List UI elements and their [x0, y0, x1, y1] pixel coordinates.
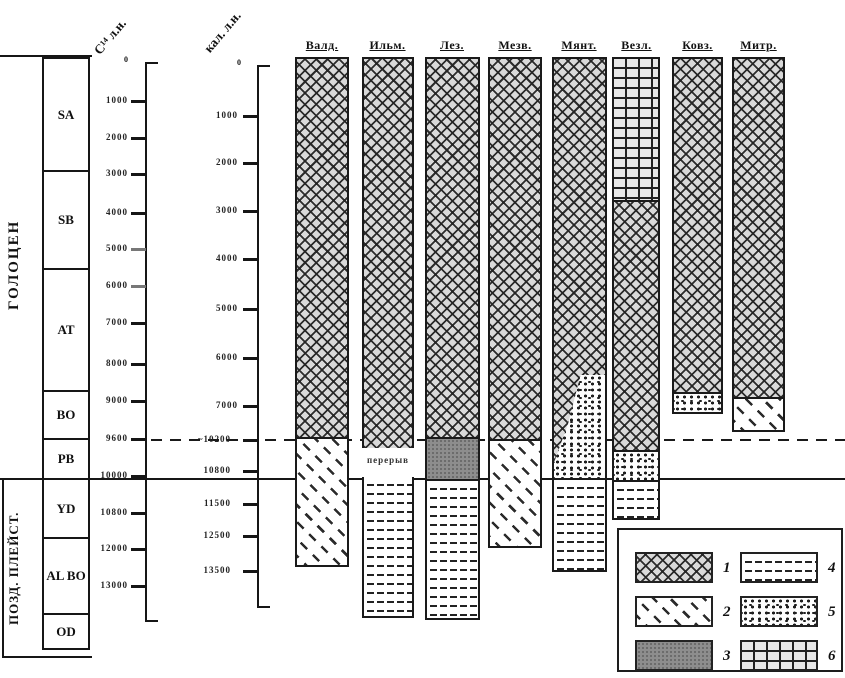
c14-tick-label: 3000 — [86, 168, 128, 178]
segment-horizontal-dash — [552, 478, 607, 572]
segment-crosshatch — [362, 57, 414, 450]
cal-tick — [243, 308, 258, 311]
cal-scale-line — [257, 65, 259, 608]
cal-tick-label: 3000 — [196, 205, 238, 215]
cal-scale-bottom-cap — [257, 606, 270, 608]
c14-tick — [131, 285, 146, 288]
cal-scale-top-cap — [257, 65, 270, 67]
legend-swatch-horizontal-dash — [740, 552, 818, 583]
segment-stipple — [612, 450, 660, 482]
cal-tick-label: 10800 — [189, 465, 231, 475]
cal-tick-label: 1000 — [196, 110, 238, 120]
cal-tick-label: 11500 — [189, 498, 231, 508]
segment-crosshatch — [488, 57, 542, 441]
c14-tick — [131, 512, 146, 515]
zone-box-sb: SB — [42, 170, 90, 270]
column-vald — [295, 57, 349, 567]
c14-tick-label: 9000 — [86, 395, 128, 405]
zone-box-at: AT — [42, 268, 90, 392]
segment-crosshatch — [732, 57, 785, 399]
cal-tick-label: 5000 — [196, 303, 238, 313]
segment-horizontal-dash — [612, 480, 660, 520]
column-header-mitr: Митр. — [728, 38, 789, 54]
c14-tick — [131, 137, 146, 140]
legend-num-6: 6 — [828, 648, 836, 665]
c14-tick — [131, 212, 146, 215]
column-vezl — [612, 57, 660, 520]
legend-num-1: 1 — [723, 560, 731, 577]
c14-tick-label: 13000 — [86, 580, 128, 590]
c14-scale-title: С¹⁴ л.н. — [91, 16, 130, 58]
legend-num-4: 4 — [828, 560, 836, 577]
column-header-myant: Мянт. — [547, 38, 611, 54]
c14-tick — [131, 438, 146, 441]
cal-tick-label: 4000 — [196, 253, 238, 263]
column-header-kovz: Ковз. — [668, 38, 727, 54]
segment-horizontal-dash — [362, 475, 414, 618]
column-kovz — [672, 57, 723, 414]
cal-tick-label: ~10200 — [189, 434, 231, 444]
cal-tick — [243, 405, 258, 408]
legend-swatch-grid — [740, 640, 818, 671]
epoch-label-late-pleistocene: ПОЗД. ПЛЕЙСТ. — [6, 483, 22, 653]
column-header-mezv: Мезв. — [483, 38, 547, 54]
c14-tick-label: 2000 — [86, 132, 128, 142]
c14-tick-label: 10800 — [86, 507, 128, 517]
c14-tick-label: 10000 — [86, 470, 128, 480]
cal-tick-label: 6000 — [196, 352, 238, 362]
legend-swatch-stipple — [740, 596, 818, 627]
column-lez — [425, 57, 480, 620]
segment-crosshatch — [612, 200, 660, 452]
legend-num-2: 2 — [723, 604, 731, 621]
segment-crosshatch — [552, 57, 607, 480]
c14-tick — [131, 585, 146, 588]
cal-tick — [243, 258, 258, 261]
column-myant — [552, 57, 607, 572]
segment-hiatus: перерыв — [362, 448, 414, 477]
legend-box: 1 2 3 4 5 6 — [617, 528, 843, 672]
zone-box-bo: BO — [42, 390, 90, 440]
segment-crosshatch — [425, 57, 480, 439]
segment-horizontal-dash — [425, 479, 480, 620]
c14-tick-label: 9600 — [86, 433, 128, 443]
c14-tick — [131, 322, 146, 325]
cal-tick — [243, 439, 258, 442]
zone-box-sa: SA — [42, 57, 90, 172]
c14-tick-label: 1000 — [86, 95, 128, 105]
c14-tick — [131, 475, 146, 478]
legend-num-5: 5 — [828, 604, 836, 621]
zone-box-pb: PB — [42, 438, 90, 480]
cal-tick — [243, 570, 258, 573]
segment-diagonal — [732, 397, 785, 432]
segment-crosshatch — [672, 57, 723, 394]
column-header-ilm: Ильм. — [357, 38, 418, 54]
epoch-label-holocene: ГОЛОЦЕН — [6, 150, 23, 380]
c14-tick-label: 6000 — [86, 280, 128, 290]
c14-tick-label: 4000 — [86, 207, 128, 217]
hiatus-label: перерыв — [358, 455, 418, 465]
c14-tick-label: 12000 — [86, 543, 128, 553]
column-mezv — [488, 57, 542, 548]
column-header-lez: Лез. — [420, 38, 484, 54]
c14-tick — [131, 548, 146, 551]
c14-tick — [131, 173, 146, 176]
cal-tick-label: 12500 — [189, 530, 231, 540]
cal-zero-label: 0 — [237, 58, 241, 67]
cal-tick-label: 2000 — [196, 157, 238, 167]
cal-tick — [243, 357, 258, 360]
column-ilm: перерыв — [362, 57, 414, 618]
c14-tick — [131, 363, 146, 366]
cal-tick — [243, 535, 258, 538]
legend-swatch-gray — [635, 640, 713, 671]
cal-tick-label: 13500 — [189, 565, 231, 575]
segment-gray — [425, 437, 480, 481]
c14-scale-top-cap — [145, 62, 158, 64]
column-mitr — [732, 57, 785, 432]
cal-tick — [243, 470, 258, 473]
c14-tick — [131, 100, 146, 103]
segment-diagonal — [488, 439, 542, 548]
cal-tick-label: 7000 — [196, 400, 238, 410]
pleistocene-bracket-line — [2, 478, 4, 658]
c14-scale-line — [145, 62, 147, 622]
legend-swatch-crosshatch — [635, 552, 713, 583]
bottom-frame-line — [2, 656, 92, 658]
c14-scale-bottom-cap — [145, 620, 158, 622]
c14-tick-label: 5000 — [86, 243, 128, 253]
legend-num-3: 3 — [723, 648, 731, 665]
cal-tick — [243, 162, 258, 165]
zone-box-albo: AL BO — [42, 537, 90, 615]
segment-diagonal — [295, 437, 349, 567]
c14-zero-label: 0 — [124, 55, 128, 64]
cal-scale-title: кал. л.н. — [201, 8, 245, 56]
c14-tick-label: 7000 — [86, 317, 128, 327]
legend-swatch-diagonal — [635, 596, 713, 627]
cal-tick — [243, 503, 258, 506]
zone-box-od: OD — [42, 613, 90, 650]
c14-tick-label: 8000 — [86, 358, 128, 368]
stratigraphic-diagram: ГОЛОЦЕН ПОЗД. ПЛЕЙСТ. SA SB AT BO PB YD … — [0, 0, 845, 678]
c14-tick — [131, 400, 146, 403]
column-header-vald: Валд. — [290, 38, 354, 54]
cal-tick — [243, 115, 258, 118]
cal-tick — [243, 210, 258, 213]
segment-grid — [612, 57, 660, 202]
segment-stipple-intrusion — [554, 375, 605, 480]
segment-stipple — [672, 392, 723, 414]
segment-crosshatch — [295, 57, 349, 439]
column-header-vezl: Везл. — [608, 38, 665, 54]
zone-box-yd: YD — [42, 478, 90, 539]
c14-tick — [131, 248, 146, 251]
